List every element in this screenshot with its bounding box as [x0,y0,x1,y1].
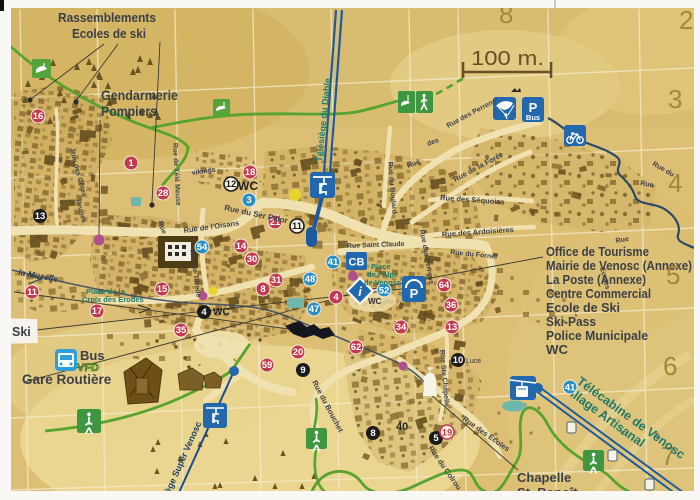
svg-text:3: 3 [246,195,251,206]
svg-text:40: 40 [396,421,408,433]
svg-text:Ecole de Ski: Ecole de Ski [546,301,620,315]
svg-text:20: 20 [293,347,304,358]
svg-text:11: 11 [27,287,38,298]
svg-text:100 m.: 100 m. [471,48,544,70]
svg-text:4: 4 [333,292,339,303]
svg-text:WC: WC [546,343,568,357]
svg-text:10: 10 [453,355,464,366]
svg-text:19: 19 [442,427,453,438]
svg-text:18: 18 [245,167,256,178]
svg-text:Luce: Luce [466,358,481,365]
svg-text:Office de Tourisme: Office de Tourisme [546,245,649,259]
svg-text:WC: WC [238,179,258,193]
svg-text:La Poste (Annexe): La Poste (Annexe) [546,273,646,287]
svg-text:Rassemblements: Rassemblements [58,10,156,25]
svg-text:Chapelle: Chapelle [517,470,571,485]
svg-text:Ecoles de ski: Ecoles de ski [72,26,146,41]
svg-text:34: 34 [396,322,407,333]
svg-text:64: 64 [439,280,450,291]
svg-text:47: 47 [309,304,320,315]
svg-text:Bus: Bus [80,348,105,363]
svg-text:2: 2 [679,5,693,35]
svg-text:9: 9 [300,365,305,376]
svg-text:1: 1 [128,158,134,169]
svg-text:WC: WC [368,297,382,306]
svg-text:48: 48 [305,274,316,285]
svg-text:30: 30 [247,254,258,265]
svg-text:14: 14 [236,241,247,252]
svg-text:5: 5 [666,260,680,290]
svg-text:de Venosc: de Venosc [364,278,401,287]
svg-text:36: 36 [446,300,457,311]
svg-text:17: 17 [92,306,103,317]
svg-text:41: 41 [328,257,339,268]
svg-text:13: 13 [35,211,46,222]
svg-text:8: 8 [260,284,265,295]
svg-text:Pompiers: Pompiers [101,104,157,119]
svg-text:11: 11 [292,221,303,232]
svg-text:Ski: Ski [12,325,31,339]
svg-text:35: 35 [176,325,187,336]
svg-text:CB: CB [349,257,365,269]
svg-text:Centre Commercial: Centre Commercial [546,287,651,301]
svg-text:5: 5 [433,433,439,444]
svg-text:Gendarmerie: Gendarmerie [101,88,178,103]
svg-text:P: P [410,286,419,301]
svg-text:i: i [358,284,362,299]
svg-text:59: 59 [262,360,273,371]
svg-text:8: 8 [370,428,375,439]
svg-text:3: 3 [668,84,682,114]
svg-text:62: 62 [351,342,362,353]
svg-text:4: 4 [201,307,207,318]
svg-text:12: 12 [226,179,237,190]
svg-text:6: 6 [663,351,677,381]
svg-text:WC: WC [213,307,230,318]
svg-text:Police Municipale: Police Municipale [546,329,648,343]
svg-text:31: 31 [271,275,282,286]
svg-text:15: 15 [157,284,168,295]
svg-text:Croix des Erodes: Croix des Erodes [82,295,144,304]
svg-text:16: 16 [33,111,44,122]
svg-text:Gare Routière: Gare Routière [22,372,112,387]
svg-text:28: 28 [158,188,169,199]
svg-text:Ski-Pass: Ski-Pass [546,315,596,329]
svg-text:13: 13 [447,322,458,333]
svg-text:52: 52 [379,285,390,296]
svg-text:Bus: Bus [526,113,540,122]
svg-text:41: 41 [565,382,576,393]
svg-text:54: 54 [197,242,208,253]
